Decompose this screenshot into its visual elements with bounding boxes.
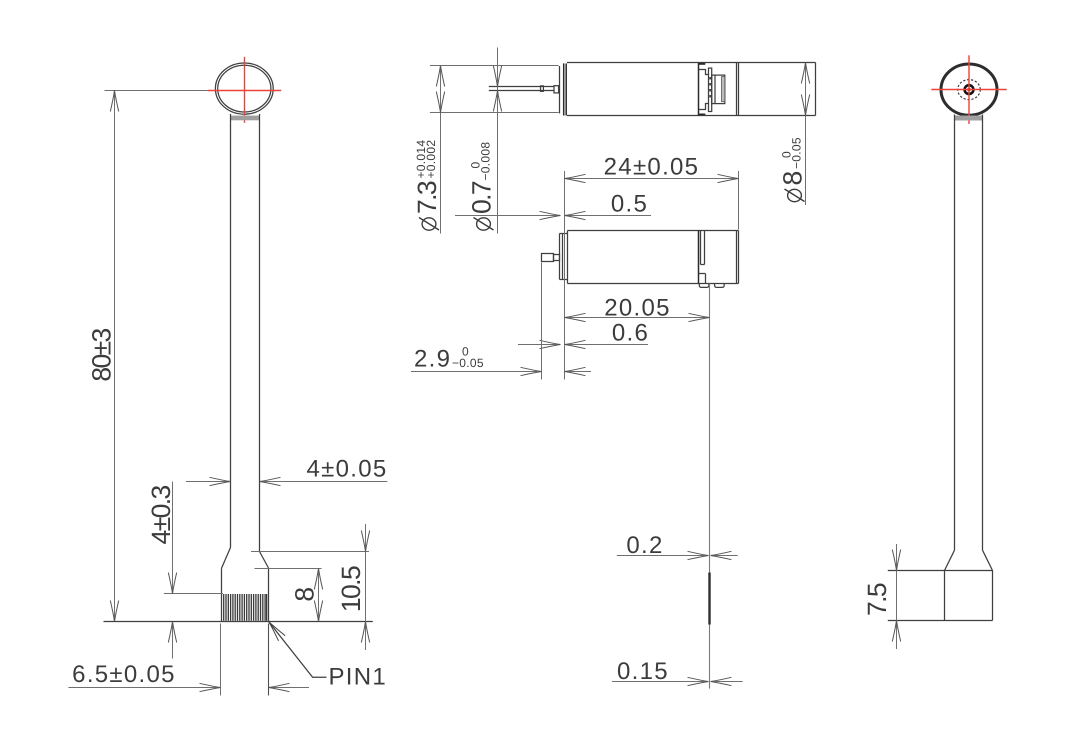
- svg-text:80±3: 80±3: [87, 328, 117, 381]
- svg-text:0.15: 0.15: [617, 658, 669, 685]
- svg-text:0.5: 0.5: [611, 190, 648, 217]
- svg-text:7.3: 7.3: [412, 181, 442, 214]
- svg-text:PIN1: PIN1: [329, 664, 388, 691]
- svg-text:10.5: 10.5: [336, 566, 366, 612]
- svg-text:7.5: 7.5: [862, 583, 892, 616]
- svg-text:6.5±0.05: 6.5±0.05: [72, 661, 176, 688]
- svg-text:8: 8: [290, 588, 320, 602]
- svg-text:4±0.05: 4±0.05: [306, 456, 387, 483]
- svg-text:−0.05: −0.05: [790, 137, 804, 169]
- svg-text:4±0.3: 4±0.3: [146, 485, 176, 544]
- svg-text:24±0.05: 24±0.05: [604, 154, 700, 181]
- svg-text:−0.008: −0.008: [479, 142, 493, 181]
- svg-text:2.9: 2.9: [414, 346, 451, 373]
- svg-text:20.05: 20.05: [604, 295, 671, 322]
- svg-text:+0.002: +0.002: [424, 140, 438, 179]
- svg-text:0.6: 0.6: [612, 320, 649, 347]
- svg-text:−0.05: −0.05: [452, 356, 484, 370]
- svg-text:0.2: 0.2: [626, 532, 663, 559]
- svg-text:8: 8: [778, 172, 808, 186]
- svg-text:0.7: 0.7: [467, 181, 497, 214]
